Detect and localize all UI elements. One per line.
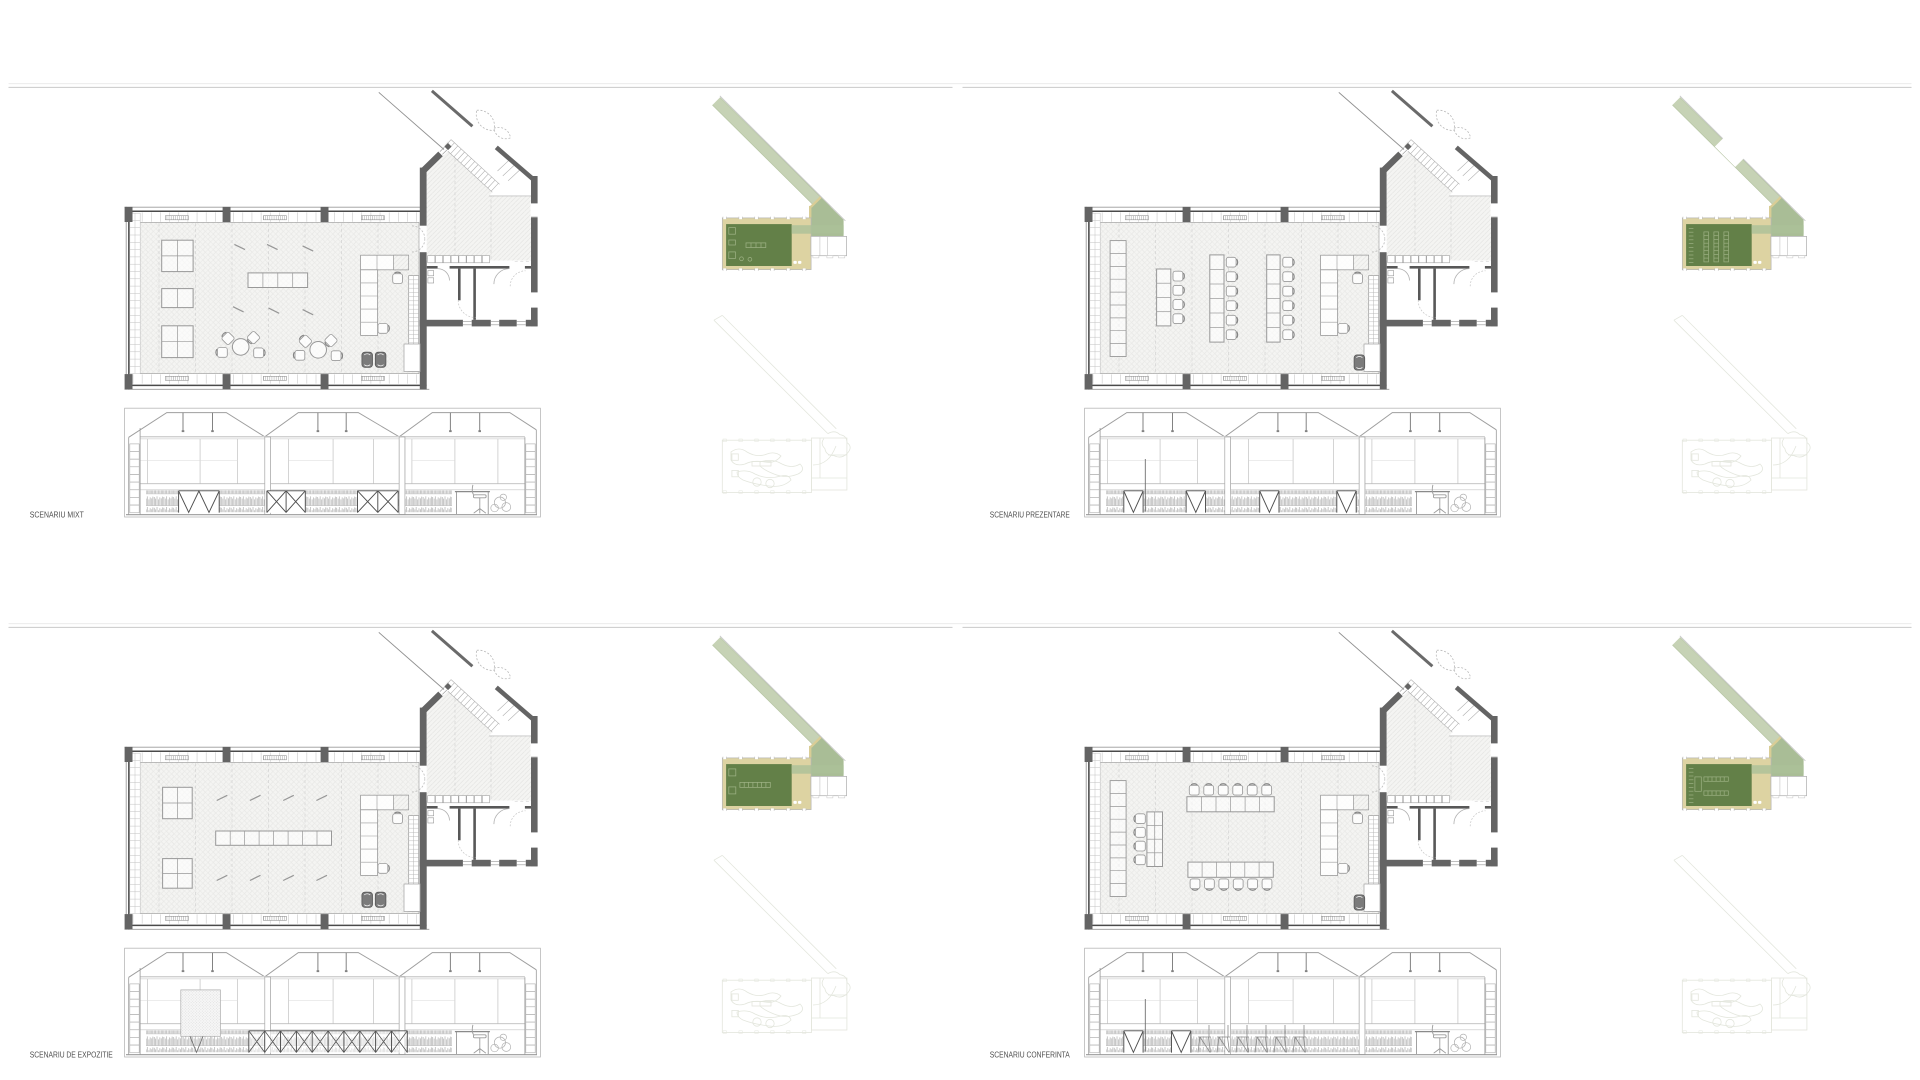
svg-text:SCENARIU DE EXPOZITIE: SCENARIU DE EXPOZITIE (30, 1051, 113, 1060)
svg-text:SCENARIU PREZENTARE: SCENARIU PREZENTARE (990, 511, 1070, 520)
svg-text:SCENARIU CONFERINTA: SCENARIU CONFERINTA (990, 1051, 1071, 1060)
svg-text:SCENARIU MIXT: SCENARIU MIXT (30, 511, 84, 520)
